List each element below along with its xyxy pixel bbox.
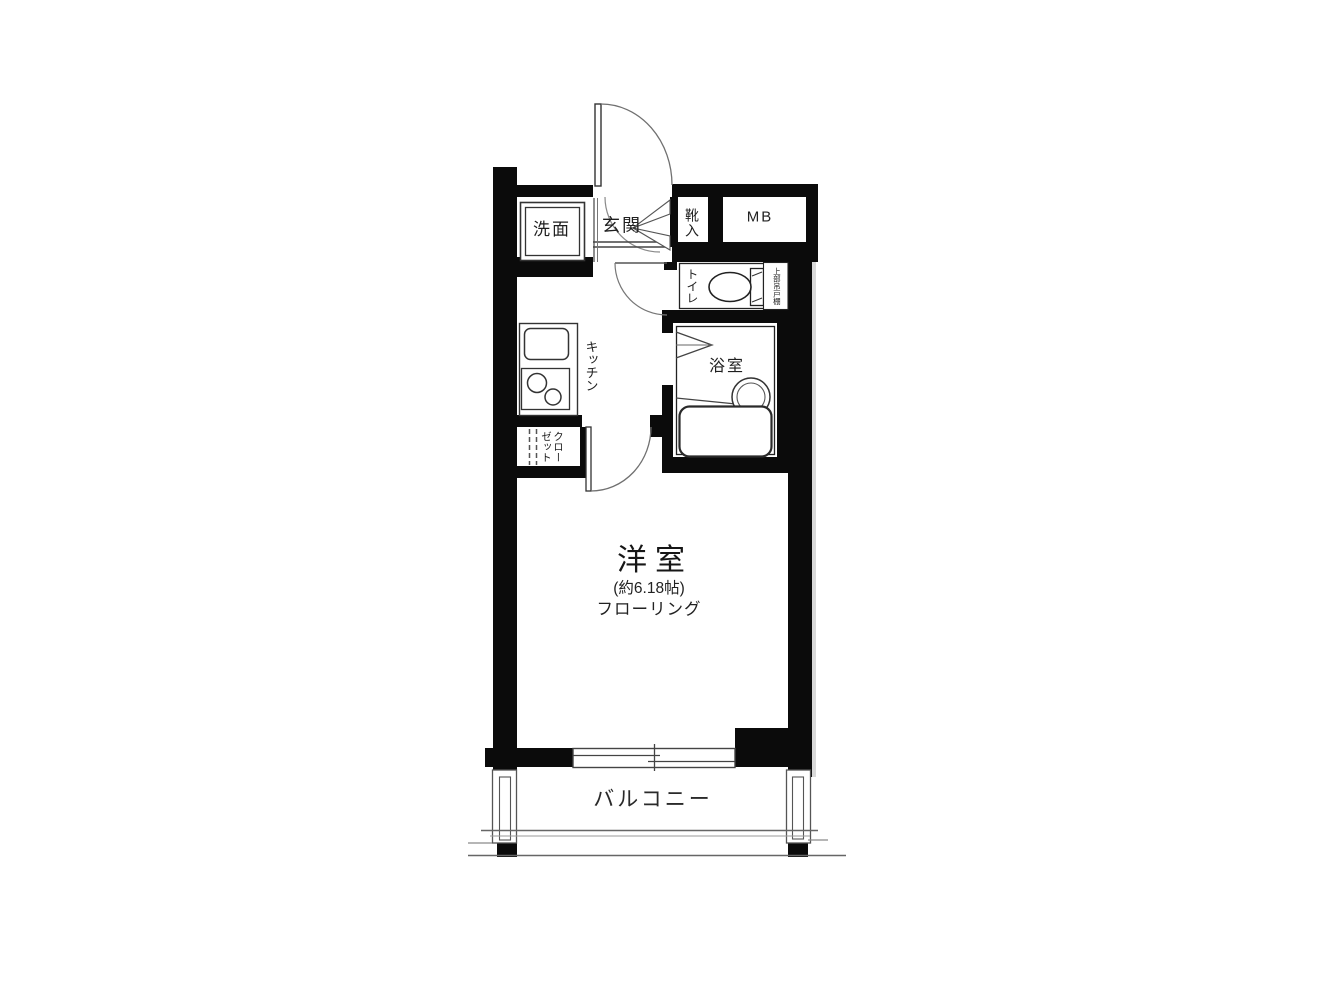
kitchen-fixtures — [520, 324, 578, 416]
toilet-label: トイレ — [684, 268, 698, 304]
meter-box-label: MB — [747, 208, 774, 225]
wall-mb-left — [708, 197, 723, 247]
wall-top-right — [672, 184, 809, 197]
closet-label: クローゼット — [540, 428, 564, 466]
wall-bath-left-top — [662, 320, 673, 333]
main-room-door — [586, 427, 651, 491]
wall-bottom-left — [485, 748, 573, 767]
entrance-door-arc — [601, 104, 672, 185]
closet-doors — [530, 429, 537, 465]
bathroom-fixtures — [676, 327, 775, 457]
bathroom-label: 浴室 — [709, 358, 745, 376]
kitchen-label: キッチン — [583, 340, 598, 392]
wall-toilet-top — [672, 242, 790, 262]
kitchen-sink-icon — [525, 329, 569, 360]
main-room-flooring: フローリング — [597, 601, 702, 620]
washroom-label: 洗面 — [533, 220, 571, 240]
main-room-label: 洋室 — [609, 544, 693, 579]
wall-bath-bottom — [662, 457, 812, 473]
wall-toilet-bottom — [662, 310, 790, 323]
bathtub-icon — [680, 407, 772, 457]
wall-shadow — [812, 196, 816, 777]
toilet-door-arc — [615, 263, 667, 315]
wall-top-left — [517, 185, 593, 197]
floorplan-drawing — [0, 0, 1335, 996]
toilet-bowl-icon — [709, 273, 751, 302]
toilet-shelf-note: 上部吊戸棚 — [772, 267, 781, 305]
shoe-cabinet-label: 靴入 — [684, 208, 700, 238]
main-room-door-leaf — [586, 427, 591, 491]
entrance-door-leaf — [595, 104, 601, 186]
main-room-area: (約6.18帖) — [613, 580, 685, 598]
wall-door-chunk — [650, 415, 662, 437]
wall-right-main — [788, 242, 812, 777]
balcony-label: バルコニー — [593, 788, 713, 812]
entrance-label: 玄関 — [602, 216, 642, 237]
balcony-window — [573, 744, 735, 771]
balcony-structure — [468, 770, 846, 856]
floorplan-page: 洗面 玄関 靴入 MB トイレ 上部吊戸棚 キッチン クローゼット 浴室 洋室 … — [0, 0, 1335, 996]
toilet-room — [615, 263, 788, 316]
wall-corner-block — [735, 728, 788, 767]
main-room-door-arc — [591, 427, 651, 491]
wall-kitchen-bottom — [517, 415, 582, 427]
wall-bath-right — [777, 323, 788, 457]
wall-shoe-separator — [670, 197, 678, 247]
wall-closet-bottom — [517, 466, 587, 478]
